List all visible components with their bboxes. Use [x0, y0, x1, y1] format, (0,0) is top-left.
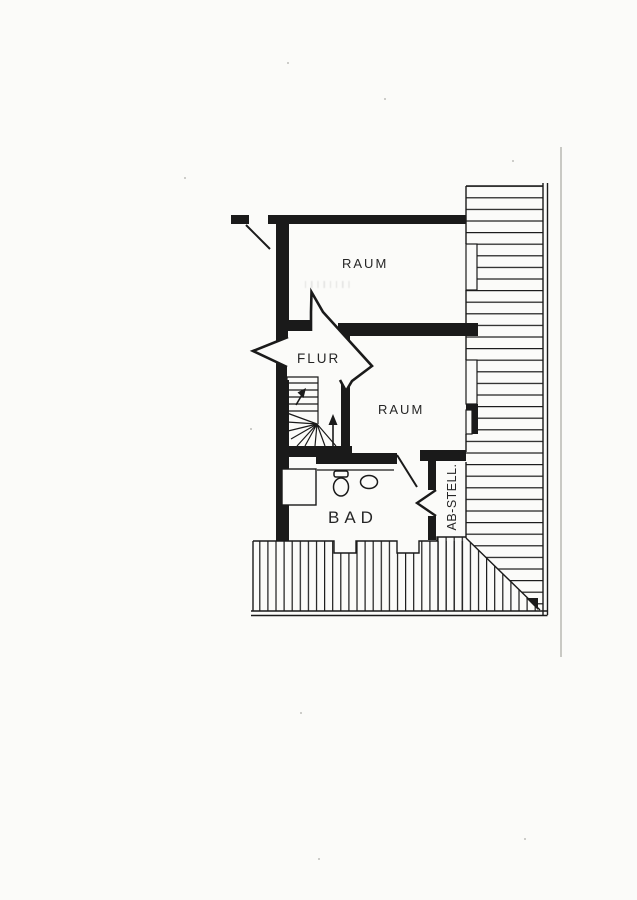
washbasin-icon [361, 476, 378, 489]
scan-smudge [300, 281, 350, 288]
wall-entry-stub [231, 215, 249, 224]
room-label-bad: BAD [328, 508, 378, 528]
bath-door-swing [397, 455, 417, 487]
knee-wall-notch-1 [466, 244, 477, 290]
toilet-icon [334, 471, 349, 496]
knee-wall-notch-3 [466, 404, 478, 434]
storage-opening-arrow [417, 490, 436, 516]
staircase [287, 377, 338, 446]
wall-top [268, 215, 466, 224]
stair-direction-arrow [329, 414, 338, 446]
floor-plan-drawing [0, 0, 637, 900]
hall-opening-star [253, 292, 372, 391]
knee-wall-notch-2 [466, 360, 477, 404]
wall-flur-top-left [286, 320, 310, 331]
room-label-raum-right: RAUM [378, 402, 424, 417]
entry-door-swing [246, 225, 270, 249]
scan-speck [384, 98, 386, 100]
wall-storage-left-upper [428, 461, 436, 490]
stair-winders [287, 413, 336, 446]
wall-bath-top [316, 453, 397, 464]
scan-speck [250, 428, 252, 430]
scan-speck [318, 858, 320, 860]
wall-room-right-top [338, 323, 478, 336]
room-label-raum-top: RAUM [342, 256, 388, 271]
wall-storage-top [420, 450, 466, 461]
room-label-abstell: AB-STELL. [445, 463, 459, 530]
scanned-floor-plan-page: RAUM FLUR RAUM BAD AB-STELL. [0, 0, 637, 900]
wall-storage-left-lower [428, 516, 436, 540]
bath-niche [282, 469, 316, 505]
scan-speck [524, 838, 526, 840]
scan-speck [300, 712, 302, 714]
room-label-flur: FLUR [297, 351, 340, 366]
scan-speck [512, 160, 514, 162]
scan-speck [184, 177, 186, 179]
paper-edge-line [560, 147, 562, 657]
scan-speck [287, 62, 289, 64]
